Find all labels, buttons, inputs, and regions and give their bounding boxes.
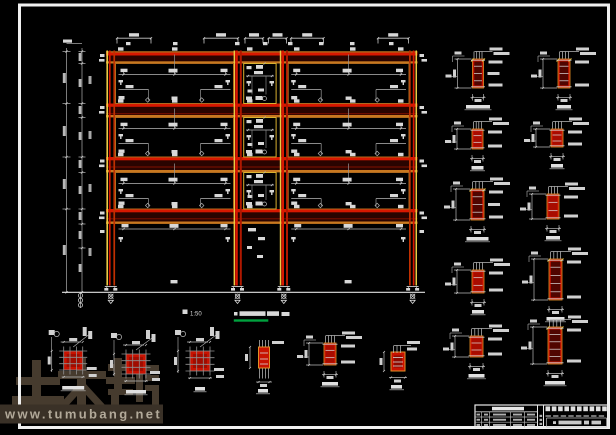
svg-text:1:50: 1:50 [190,312,202,318]
svg-text:www.tumubang.net: www.tumubang.net [4,407,162,422]
